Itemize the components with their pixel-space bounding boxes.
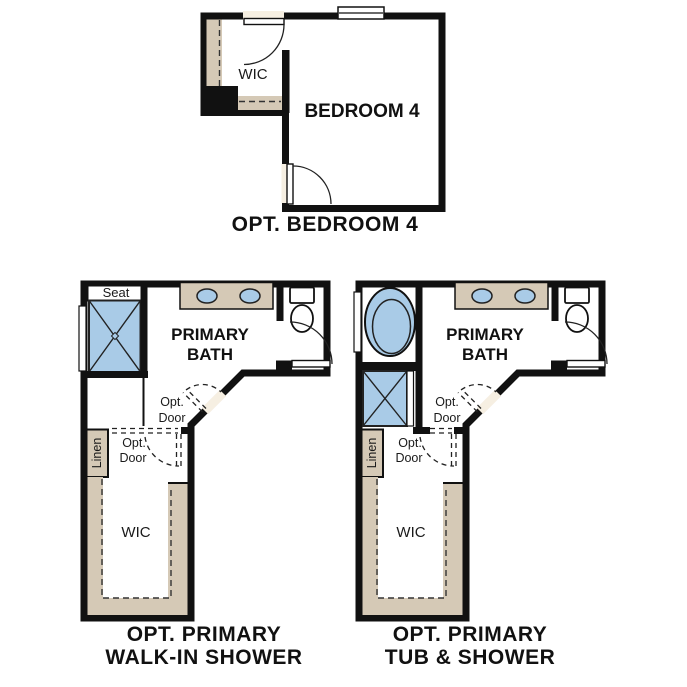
shower-room-bottom-wall bbox=[81, 371, 148, 378]
opt-door-upper-label2: Door bbox=[433, 411, 460, 425]
wic-shelf-bottom bbox=[88, 598, 171, 615]
tub-shower-plan: Opt. Door Opt. Door Linen WIC PRIMARY BA… bbox=[354, 283, 607, 670]
wic-shelf-bottom bbox=[363, 598, 446, 615]
lower-wall-stub bbox=[181, 427, 192, 434]
primary-bath-label2: BATH bbox=[187, 345, 233, 364]
optional-door-lower-arc bbox=[420, 437, 454, 466]
primary-bath-label1: PRIMARY bbox=[446, 325, 524, 344]
optional-door-lower-leaf bbox=[177, 434, 182, 466]
primary-bath-label2: BATH bbox=[462, 345, 508, 364]
floorplan-drawing: WIC BEDROOM 4 OPT. BEDROOM 4 Seat bbox=[0, 0, 687, 687]
toilet-tank bbox=[290, 288, 314, 304]
shower-glass bbox=[407, 371, 414, 426]
shower-window bbox=[79, 306, 86, 371]
optional-door-lower-opening bbox=[430, 429, 452, 434]
vanity-sink-right bbox=[240, 289, 260, 303]
opt-door-lower-label1: Opt. bbox=[398, 436, 422, 450]
vanity-sink-left bbox=[197, 289, 217, 303]
linen-label: Linen bbox=[90, 438, 104, 469]
opt-door-lower-label2: Door bbox=[395, 451, 422, 465]
toilet-divider-wall bbox=[552, 284, 559, 321]
bedroom-door-leaf bbox=[287, 164, 293, 204]
bedroom4-plan: WIC BEDROOM 4 OPT. BEDROOM 4 bbox=[201, 7, 442, 236]
linen-label: Linen bbox=[365, 438, 379, 469]
toilet-bowl bbox=[291, 305, 313, 332]
toilet-alcove-stub-wall bbox=[551, 361, 567, 372]
diagonal-door-opening bbox=[205, 393, 223, 411]
tub-window bbox=[354, 292, 361, 352]
opt-door-upper-label1: Opt. bbox=[160, 395, 184, 409]
opt-door-lower-label2: Door bbox=[119, 451, 146, 465]
tubshower-caption-line2: TUB & SHOWER bbox=[385, 646, 556, 669]
shower-bath-divider-wall bbox=[141, 284, 148, 377]
bedroom4-label: BEDROOM 4 bbox=[304, 101, 420, 122]
optional-door-lower-leaf bbox=[452, 434, 457, 466]
wic-door-swing-arc bbox=[244, 25, 284, 65]
optional-door-lower-opening bbox=[112, 429, 178, 434]
bedroom4-caption: OPT. BEDROOM 4 bbox=[232, 213, 419, 236]
tub-room-bottom-wall bbox=[356, 362, 422, 371]
walk-in-shower-plan: Seat Opt. Door Opt. Door Linen bbox=[79, 283, 332, 670]
wic-label: WIC bbox=[121, 524, 150, 541]
floorplan-sheet: WIC BEDROOM 4 OPT. BEDROOM 4 Seat bbox=[0, 0, 687, 687]
toilet-door-leaf bbox=[292, 361, 330, 368]
wic-label: WIC bbox=[238, 66, 267, 83]
optional-door-upper-arc bbox=[186, 385, 221, 392]
wic-label: WIC bbox=[396, 524, 425, 541]
primary-bath-label1: PRIMARY bbox=[171, 325, 249, 344]
vanity-sink-left bbox=[472, 289, 492, 303]
opt-door-lower-label1: Opt. bbox=[122, 436, 146, 450]
bedroom-door-swing-arc bbox=[293, 166, 331, 204]
wic-shelf-bottom bbox=[238, 96, 282, 110]
wic-shelf-left bbox=[88, 477, 104, 615]
optional-door-upper-arc bbox=[461, 385, 496, 392]
tub-bath-divider-wall bbox=[416, 284, 423, 430]
walkin-caption-line2: WALK-IN SHOWER bbox=[105, 646, 302, 669]
seat-label: Seat bbox=[103, 285, 130, 300]
opt-door-upper-label1: Opt. bbox=[435, 395, 459, 409]
wic-divider-wall bbox=[282, 50, 290, 113]
lower-wall-left bbox=[413, 427, 430, 434]
wic-door-leaf bbox=[244, 19, 284, 25]
opt-door-upper-label2: Door bbox=[158, 411, 185, 425]
walkin-caption-line1: OPT. PRIMARY bbox=[127, 623, 282, 646]
toilet-door-leaf bbox=[567, 361, 605, 368]
tubshower-caption-line1: OPT. PRIMARY bbox=[393, 623, 548, 646]
toilet-bowl bbox=[566, 305, 588, 332]
toilet-divider-wall bbox=[277, 284, 284, 321]
diagonal-door-opening bbox=[480, 393, 498, 411]
toilet-alcove-stub-wall bbox=[276, 361, 292, 372]
optional-door-lower-arc bbox=[145, 437, 179, 466]
toilet-tank bbox=[565, 288, 589, 304]
wall-chase-block bbox=[201, 86, 238, 115]
lower-wall-stub bbox=[454, 427, 467, 434]
wic-shelf-left bbox=[363, 477, 379, 615]
vanity-sink-right bbox=[515, 289, 535, 303]
